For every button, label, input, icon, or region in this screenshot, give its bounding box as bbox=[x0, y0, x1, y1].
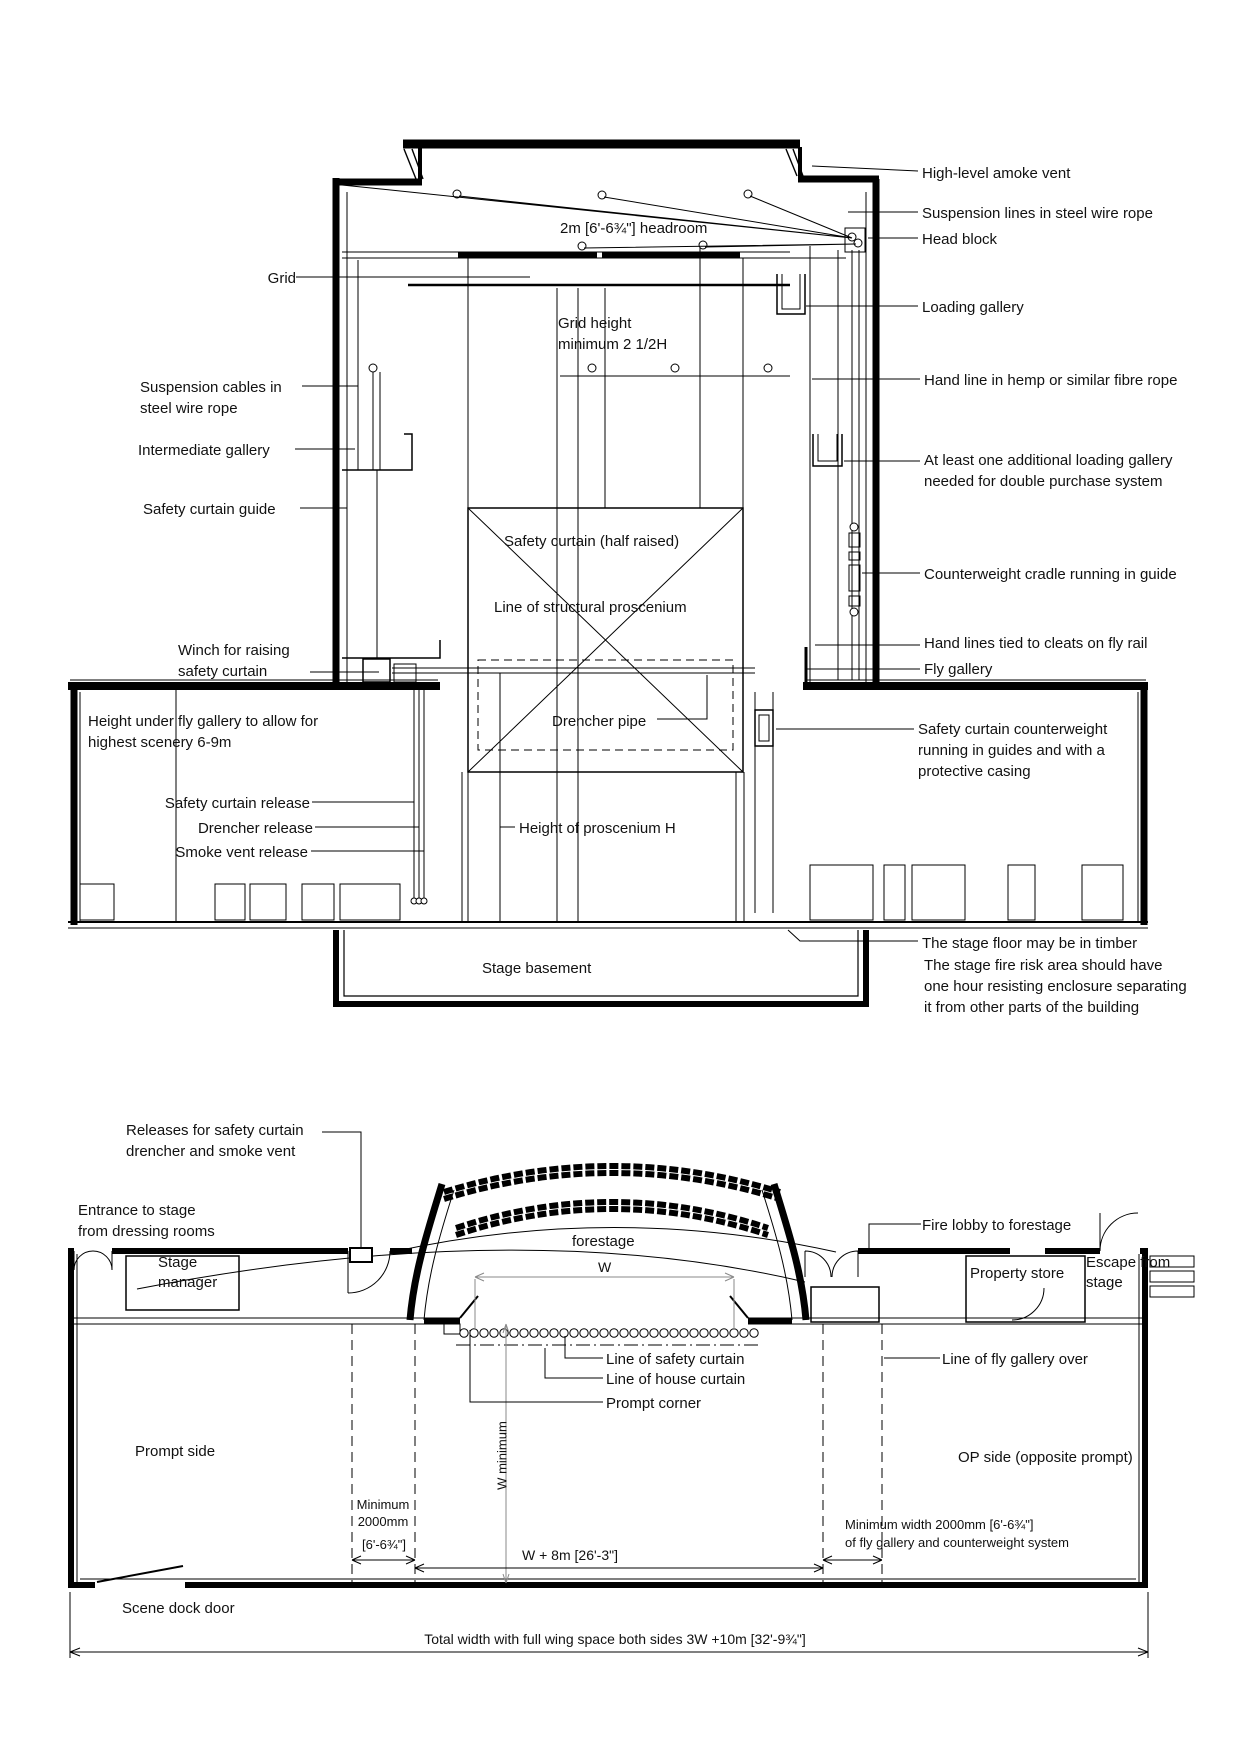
label-line: stage bbox=[1086, 1273, 1196, 1293]
label-drencher-release: Drencher release bbox=[153, 818, 313, 839]
label-op-side: OP side (opposite prompt) bbox=[958, 1447, 1168, 1468]
label-min-2000-line2: 2000mm bbox=[350, 1513, 416, 1530]
safety-curtain-winch bbox=[363, 659, 390, 682]
label-line-house-curtain: Line of house curtain bbox=[606, 1369, 771, 1390]
label-line: Winch for raising bbox=[178, 640, 308, 661]
label-property-store: Property store bbox=[970, 1263, 1075, 1284]
label-sc-counterweight: Safety curtain counterweight running in … bbox=[918, 719, 1148, 782]
escape-door bbox=[1100, 1213, 1138, 1251]
label-hand-line: Hand line in hemp or similar fibre rope bbox=[924, 370, 1214, 391]
label-line: it from other parts of the building bbox=[924, 997, 1214, 1018]
label-structural-proscenium: Line of structural proscenium bbox=[494, 597, 714, 618]
label-stage-manager: Stage manager bbox=[158, 1253, 238, 1293]
label-line: At least one additional loading gallery bbox=[924, 450, 1219, 471]
label-line: protective casing bbox=[918, 761, 1148, 782]
label-prompt-side: Prompt side bbox=[135, 1441, 240, 1462]
intermediate-gallery bbox=[342, 434, 412, 470]
label-head-block: Head block bbox=[922, 229, 1022, 250]
label-line: Minimum width 2000mm [6'-6¾"] bbox=[845, 1516, 1095, 1534]
label-intermediate-gallery: Intermediate gallery bbox=[138, 440, 298, 461]
label-fire-risk: The stage fire risk area should have one… bbox=[924, 955, 1214, 1018]
label-smoke-vent: High-level amoke vent bbox=[922, 163, 1102, 184]
label-releases: Releases for safety curtain drencher and… bbox=[126, 1120, 331, 1162]
proscenium-jamb-right bbox=[730, 1296, 748, 1318]
label-entrance: Entrance to stage from dressing rooms bbox=[78, 1200, 243, 1242]
label-line: Suspension cables in bbox=[140, 377, 305, 398]
label-min-2000-line1: Minimum bbox=[350, 1496, 416, 1513]
label-w-minimum: W minimum bbox=[494, 1411, 511, 1501]
label-timber-floor: The stage floor may be in timber bbox=[922, 933, 1162, 954]
label-line: Grid height bbox=[558, 313, 693, 334]
property-store-door bbox=[1012, 1288, 1044, 1320]
counterweight-cradle bbox=[849, 565, 860, 591]
floor-blocks bbox=[80, 865, 1123, 920]
label-stage-basement: Stage basement bbox=[482, 958, 602, 979]
w-dimension bbox=[475, 1273, 734, 1583]
scene-dock-door-leaf bbox=[97, 1566, 183, 1582]
house-curtain-scallops bbox=[460, 1329, 758, 1337]
label-line: needed for double purchase system bbox=[924, 471, 1219, 492]
label-line: The stage fire risk area should have bbox=[924, 955, 1214, 976]
plan-seating bbox=[444, 1166, 780, 1235]
entrance-double-door bbox=[74, 1251, 112, 1270]
label-line: Releases for safety curtain bbox=[126, 1120, 331, 1141]
label-counterweight-cradle: Counterweight cradle running in guide bbox=[924, 564, 1209, 585]
prompt-corner-box bbox=[444, 1324, 460, 1334]
label-suspension-lines: Suspension lines in steel wire rope bbox=[922, 203, 1182, 224]
label-safety-curtain: Safety curtain (half raised) bbox=[504, 531, 704, 552]
label-line: Stage bbox=[158, 1253, 238, 1273]
label-grid: Grid bbox=[250, 268, 296, 289]
label-winch: Winch for raising safety curtain bbox=[178, 640, 308, 682]
label-line: steel wire rope bbox=[140, 398, 305, 419]
label-line: safety curtain bbox=[178, 661, 308, 682]
label-escape: Escape from stage bbox=[1086, 1253, 1196, 1293]
label-total-width: Total width with full wing space both si… bbox=[415, 1630, 815, 1648]
label-grid-height: Grid height minimum 2 1/2H bbox=[558, 313, 693, 355]
label-line: Entrance to stage bbox=[78, 1200, 243, 1221]
label-headroom: 2m [6'-6¾"] headroom bbox=[560, 218, 745, 239]
fire-lobby-box bbox=[811, 1287, 879, 1322]
label-suspension-cables: Suspension cables in steel wire rope bbox=[140, 377, 305, 419]
label-smoke-vent-release: Smoke vent release bbox=[148, 842, 308, 863]
label-hand-lines-cleats: Hand lines tied to cleats on fly rail bbox=[924, 633, 1179, 654]
section-grid-rigging bbox=[342, 185, 865, 922]
fire-lobby-doors bbox=[805, 1251, 858, 1277]
label-line-fly-gallery: Line of fly gallery over bbox=[942, 1349, 1127, 1370]
proscenium-wall-line bbox=[74, 1318, 1144, 1324]
label-line: drencher and smoke vent bbox=[126, 1141, 331, 1162]
drawing-canvas bbox=[0, 0, 1240, 1755]
label-safety-curtain-guide: Safety curtain guide bbox=[143, 499, 303, 520]
label-min-2000-line3: [6'-6¾"] bbox=[354, 1536, 414, 1553]
label-w: W bbox=[598, 1258, 620, 1276]
label-line: of fly gallery and counterweight system bbox=[845, 1534, 1095, 1552]
label-drencher-pipe: Drencher pipe bbox=[552, 711, 662, 732]
label-loading-gallery: Loading gallery bbox=[922, 297, 1052, 318]
label-additional-gallery: At least one additional loading gallery … bbox=[924, 450, 1219, 492]
theatre-stage-diagram: Grid Suspension cables in steel wire rop… bbox=[0, 0, 1240, 1755]
left-fly-gallery bbox=[342, 640, 440, 658]
label-w-plus-8m: W + 8m [26'-3"] bbox=[500, 1546, 640, 1564]
label-scene-dock: Scene dock door bbox=[122, 1598, 257, 1619]
label-line: one hour resisting enclosure separating bbox=[924, 976, 1214, 997]
label-line: minimum 2 1/2H bbox=[558, 334, 693, 355]
label-line: manager bbox=[158, 1273, 238, 1293]
label-line: Escape from bbox=[1086, 1253, 1196, 1273]
label-fly-gallery: Fly gallery bbox=[924, 659, 1024, 680]
label-line: Height under fly gallery to allow for bbox=[88, 711, 363, 732]
label-line: highest scenery 6-9m bbox=[88, 732, 363, 753]
label-safety-curtain-release: Safety curtain release bbox=[150, 793, 310, 814]
label-line: running in guides and with a bbox=[918, 740, 1148, 761]
label-height-under-fly: Height under fly gallery to allow for hi… bbox=[88, 711, 363, 753]
loading-gallery bbox=[777, 274, 805, 314]
release-panel bbox=[350, 1248, 372, 1262]
label-min-width-fly: Minimum width 2000mm [6'-6¾"] of fly gal… bbox=[845, 1516, 1095, 1552]
label-proscenium-height: Height of proscenium H bbox=[519, 818, 699, 839]
label-prompt-corner: Prompt corner bbox=[606, 1393, 731, 1414]
label-fire-lobby: Fire lobby to forestage bbox=[922, 1215, 1097, 1236]
label-line: from dressing rooms bbox=[78, 1221, 243, 1242]
label-line-safety-curtain: Line of safety curtain bbox=[606, 1349, 771, 1370]
label-line: Safety curtain counterweight bbox=[918, 719, 1148, 740]
label-forestage: forestage bbox=[572, 1231, 662, 1252]
